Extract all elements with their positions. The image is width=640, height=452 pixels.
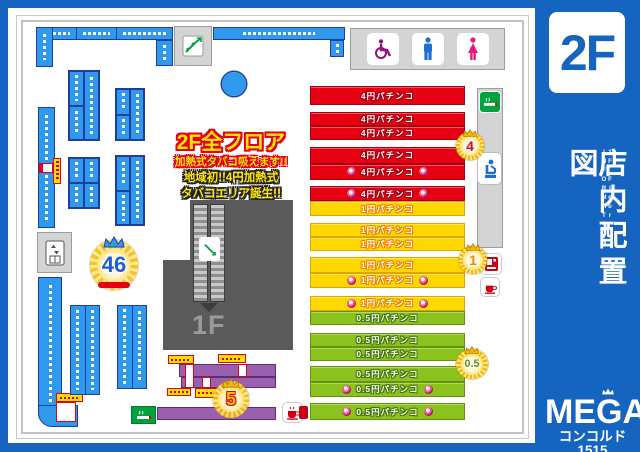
restroom-box [350, 28, 505, 70]
pachinko-row-green: 0.5円パチンコ [310, 311, 465, 326]
machine-label-illegible [84, 183, 99, 208]
row-label: 0.5円パチンコ [356, 312, 418, 324]
badge-05yen: 0.5 [456, 349, 488, 379]
pachinko-row-yellow: 1円パチンコ [310, 257, 465, 273]
crown-icon [465, 243, 481, 251]
highlight-marker [202, 377, 211, 388]
headline-block: 2F全フロア 加熱式タバコ吸えます!! 地域初!!4円加熱式 タバコエリア誕生!… [160, 132, 302, 200]
machine-label-illegible [86, 306, 100, 394]
machine-label-illegible [77, 28, 117, 39]
price-row-group: 0.5円パチンコ0.5円パチンコ [310, 333, 465, 357]
machine-island [117, 305, 147, 389]
row-label: 0.5円パチンコ [356, 348, 418, 360]
machine-island [115, 88, 145, 141]
machine-label-illegible [116, 115, 130, 141]
cigarette-icon [136, 409, 152, 421]
badge-46: 46 [90, 240, 138, 290]
pachinko-row-red: 4円パチンコ [310, 164, 465, 181]
row-character-icon [419, 299, 428, 308]
row-label: 1円パチンコ [361, 297, 414, 309]
pachinko-row-yellow: 1円パチンコ [310, 296, 465, 311]
escalator-up-icon [182, 35, 204, 57]
women-restroom-icon [463, 37, 483, 61]
massage-chair-icon [481, 157, 499, 181]
badge-05-number: 0.5 [464, 358, 479, 370]
badge-4yen: 4 [456, 132, 484, 160]
row-character-icon [342, 385, 351, 394]
price-row-group: 4円パチンコ [310, 86, 465, 105]
price-row-group: 4円パチンコ4円パチンコ [310, 147, 465, 180]
men-restroom-icon [418, 37, 438, 61]
row-label: 4円パチンコ [361, 166, 414, 178]
row-label: 1円パチンコ [361, 203, 414, 215]
row-character-icon [347, 276, 356, 285]
row-character-icon [347, 167, 356, 176]
price-row-group: 1円パチンコ0.5円パチンコ [310, 296, 465, 325]
row-label: 4円パチンコ [361, 127, 414, 139]
men-restroom-tile [412, 33, 444, 65]
machine-label-illegible [69, 183, 84, 208]
machine-label-illegible [116, 156, 130, 191]
counter-ring [222, 72, 246, 96]
pachinko-row-green: 0.5円パチンコ [310, 333, 465, 347]
badge-1-number: 1 [469, 252, 477, 268]
pachinko-row-red: 4円パチンコ [310, 86, 465, 105]
pachinko-row-yellow: 1円パチンコ [310, 273, 465, 289]
machine-label-illegible [84, 71, 99, 140]
crown-icon [221, 378, 241, 388]
machine-label-illegible [133, 306, 147, 388]
badge-ribbon [98, 282, 130, 288]
machine-bar-top-left-arm [36, 27, 53, 67]
elevator-icon [45, 240, 65, 266]
pachinko-row-yellow: 1円パチンコ [310, 201, 465, 216]
machine-bar-top-left [36, 27, 173, 40]
machine-label-illegible [117, 28, 172, 39]
coffee-tile [480, 277, 500, 297]
highlight-marker [185, 364, 194, 388]
promo-tag [53, 158, 61, 184]
machine-label-illegible [69, 71, 84, 106]
row-character-icon [419, 189, 428, 198]
machine-island [70, 305, 100, 395]
machine-bar-top-right [213, 27, 345, 40]
machine-label-illegible [69, 158, 84, 183]
crown-icon [102, 236, 126, 248]
stairwell-block-ext [163, 260, 193, 350]
floor-badge-label: 2F [560, 24, 614, 82]
machine-label-illegible [69, 106, 84, 141]
machine-bar-top-right-stub [330, 40, 344, 57]
floor-map-page: 2F全フロア 加熱式タバコ吸えます!! 地域初!!4円加熱式 タバコエリア誕生!… [0, 0, 640, 452]
pachinko-row-yellow: 1円パチンコ [310, 223, 465, 237]
floor-badge: 2F [549, 12, 625, 93]
row-label: 0.5円パチンコ [356, 406, 418, 418]
badge-4-number: 4 [466, 138, 474, 154]
headline-line4: タバコエリア誕生!! [160, 188, 302, 200]
price-row-group: 1円パチンコ1円パチンコ [310, 257, 465, 288]
machine-bar-top-stub [156, 40, 173, 66]
accessible-restroom-tile [367, 33, 399, 65]
row-label: 4円パチンコ [361, 90, 414, 102]
promo-tag [218, 354, 246, 363]
machine-bar-left-bottom [38, 277, 62, 411]
cigarette-icon [483, 96, 498, 108]
pachinko-row-red: 4円パチンコ [310, 112, 465, 126]
escalator-down-icon [202, 241, 218, 257]
price-row-group: 0.5円パチンコ [310, 403, 465, 420]
machine-island [68, 157, 100, 209]
highlight-marker [39, 163, 53, 173]
row-character-icon [347, 299, 356, 308]
coffee-icon [484, 281, 497, 294]
escalator-up-box [174, 26, 212, 66]
price-row-group: 1円パチンコ1円パチンコ [310, 223, 465, 250]
pachinko-row-green: 0.5円パチンコ [310, 382, 465, 398]
pachinko-row-green: 0.5円パチンコ [310, 366, 465, 382]
brand-name: MEGA [545, 395, 640, 429]
row-label: 1円パチンコ [361, 259, 414, 271]
badge-46-number: 46 [102, 252, 126, 278]
badge-5: 5 [213, 381, 249, 418]
crown-icon [462, 129, 478, 137]
row-label: 1円パチンコ [361, 274, 414, 286]
machine-label-illegible [130, 89, 144, 140]
pachinko-row-red: 4円パチンコ [310, 147, 465, 164]
highlight-marker [238, 364, 247, 377]
headline-line1: 2F全フロア [160, 132, 302, 154]
machine-island [115, 155, 145, 226]
row-character-icon [419, 276, 428, 285]
escalator-down-tile [199, 237, 220, 261]
wheelchair-icon [372, 38, 394, 60]
row-label: 4円パチンコ [361, 188, 414, 200]
pachinko-row-red: 4円パチンコ [310, 186, 465, 201]
row-label: 4円パチンコ [361, 149, 414, 161]
row-label: 4円パチンコ [361, 113, 414, 125]
sidebar-subtitle: 1F Floor INFORMATION [601, 150, 613, 310]
coffee-icon [286, 406, 300, 420]
pachinko-row-red: 4円パチンコ [310, 126, 465, 140]
machine-label-illegible [118, 306, 133, 388]
promo-tag [168, 355, 194, 364]
row-character-icon [342, 407, 351, 416]
headline-line3: 地域初!!4円加熱式 [160, 172, 302, 184]
row-label: 0.5円パチンコ [356, 334, 418, 346]
smoking-area-box [131, 406, 156, 424]
row-label: 0.5円パチンコ [356, 383, 418, 395]
row-character-icon [419, 167, 428, 176]
machine-label-illegible [84, 158, 99, 183]
row-character-icon [424, 385, 433, 394]
machine-label-illegible [71, 306, 86, 394]
pachinko-row-green: 0.5円パチンコ [310, 347, 465, 361]
brand-logo: MEGA コンコルド1515 大垣インター南店 [545, 395, 640, 452]
highlight-marker [56, 402, 76, 422]
women-restroom-tile [457, 33, 489, 65]
row-label: 0.5円パチンコ [356, 368, 418, 380]
badge-5-number: 5 [226, 389, 236, 410]
sidebar-title: 店内配置図 [566, 148, 624, 318]
badge-1yen: 1 [459, 246, 487, 274]
row-label: 1円パチンコ [361, 238, 414, 250]
headline-line2: 加熱式タバコ吸えます!! [160, 157, 302, 168]
promo-tag [167, 388, 191, 396]
smoking-area-box [479, 91, 501, 113]
mini-red-marker [299, 406, 308, 419]
row-character-icon [424, 407, 433, 416]
pachinko-row-green: 0.5円パチンコ [310, 403, 465, 420]
price-row-group: 0.5円パチンコ0.5円パチンコ [310, 366, 465, 397]
stairs-floor-label: 1F [192, 310, 226, 341]
elevator-box [37, 232, 72, 273]
machine-label-illegible [116, 89, 130, 115]
pachinko-row-yellow: 1円パチンコ [310, 237, 465, 251]
row-label: 1円パチンコ [361, 224, 414, 236]
crown-icon [464, 346, 480, 354]
crown-icon [601, 387, 615, 396]
machine-island [68, 70, 100, 141]
price-row-group: 4円パチンコ4円パチンコ [310, 112, 465, 140]
brand-line1: コンコルド1515 [545, 430, 640, 452]
price-row-group: 4円パチンコ1円パチンコ [310, 186, 465, 216]
row-character-icon [347, 189, 356, 198]
machine-label-illegible [116, 191, 130, 226]
machine-label-illegible [130, 156, 144, 225]
